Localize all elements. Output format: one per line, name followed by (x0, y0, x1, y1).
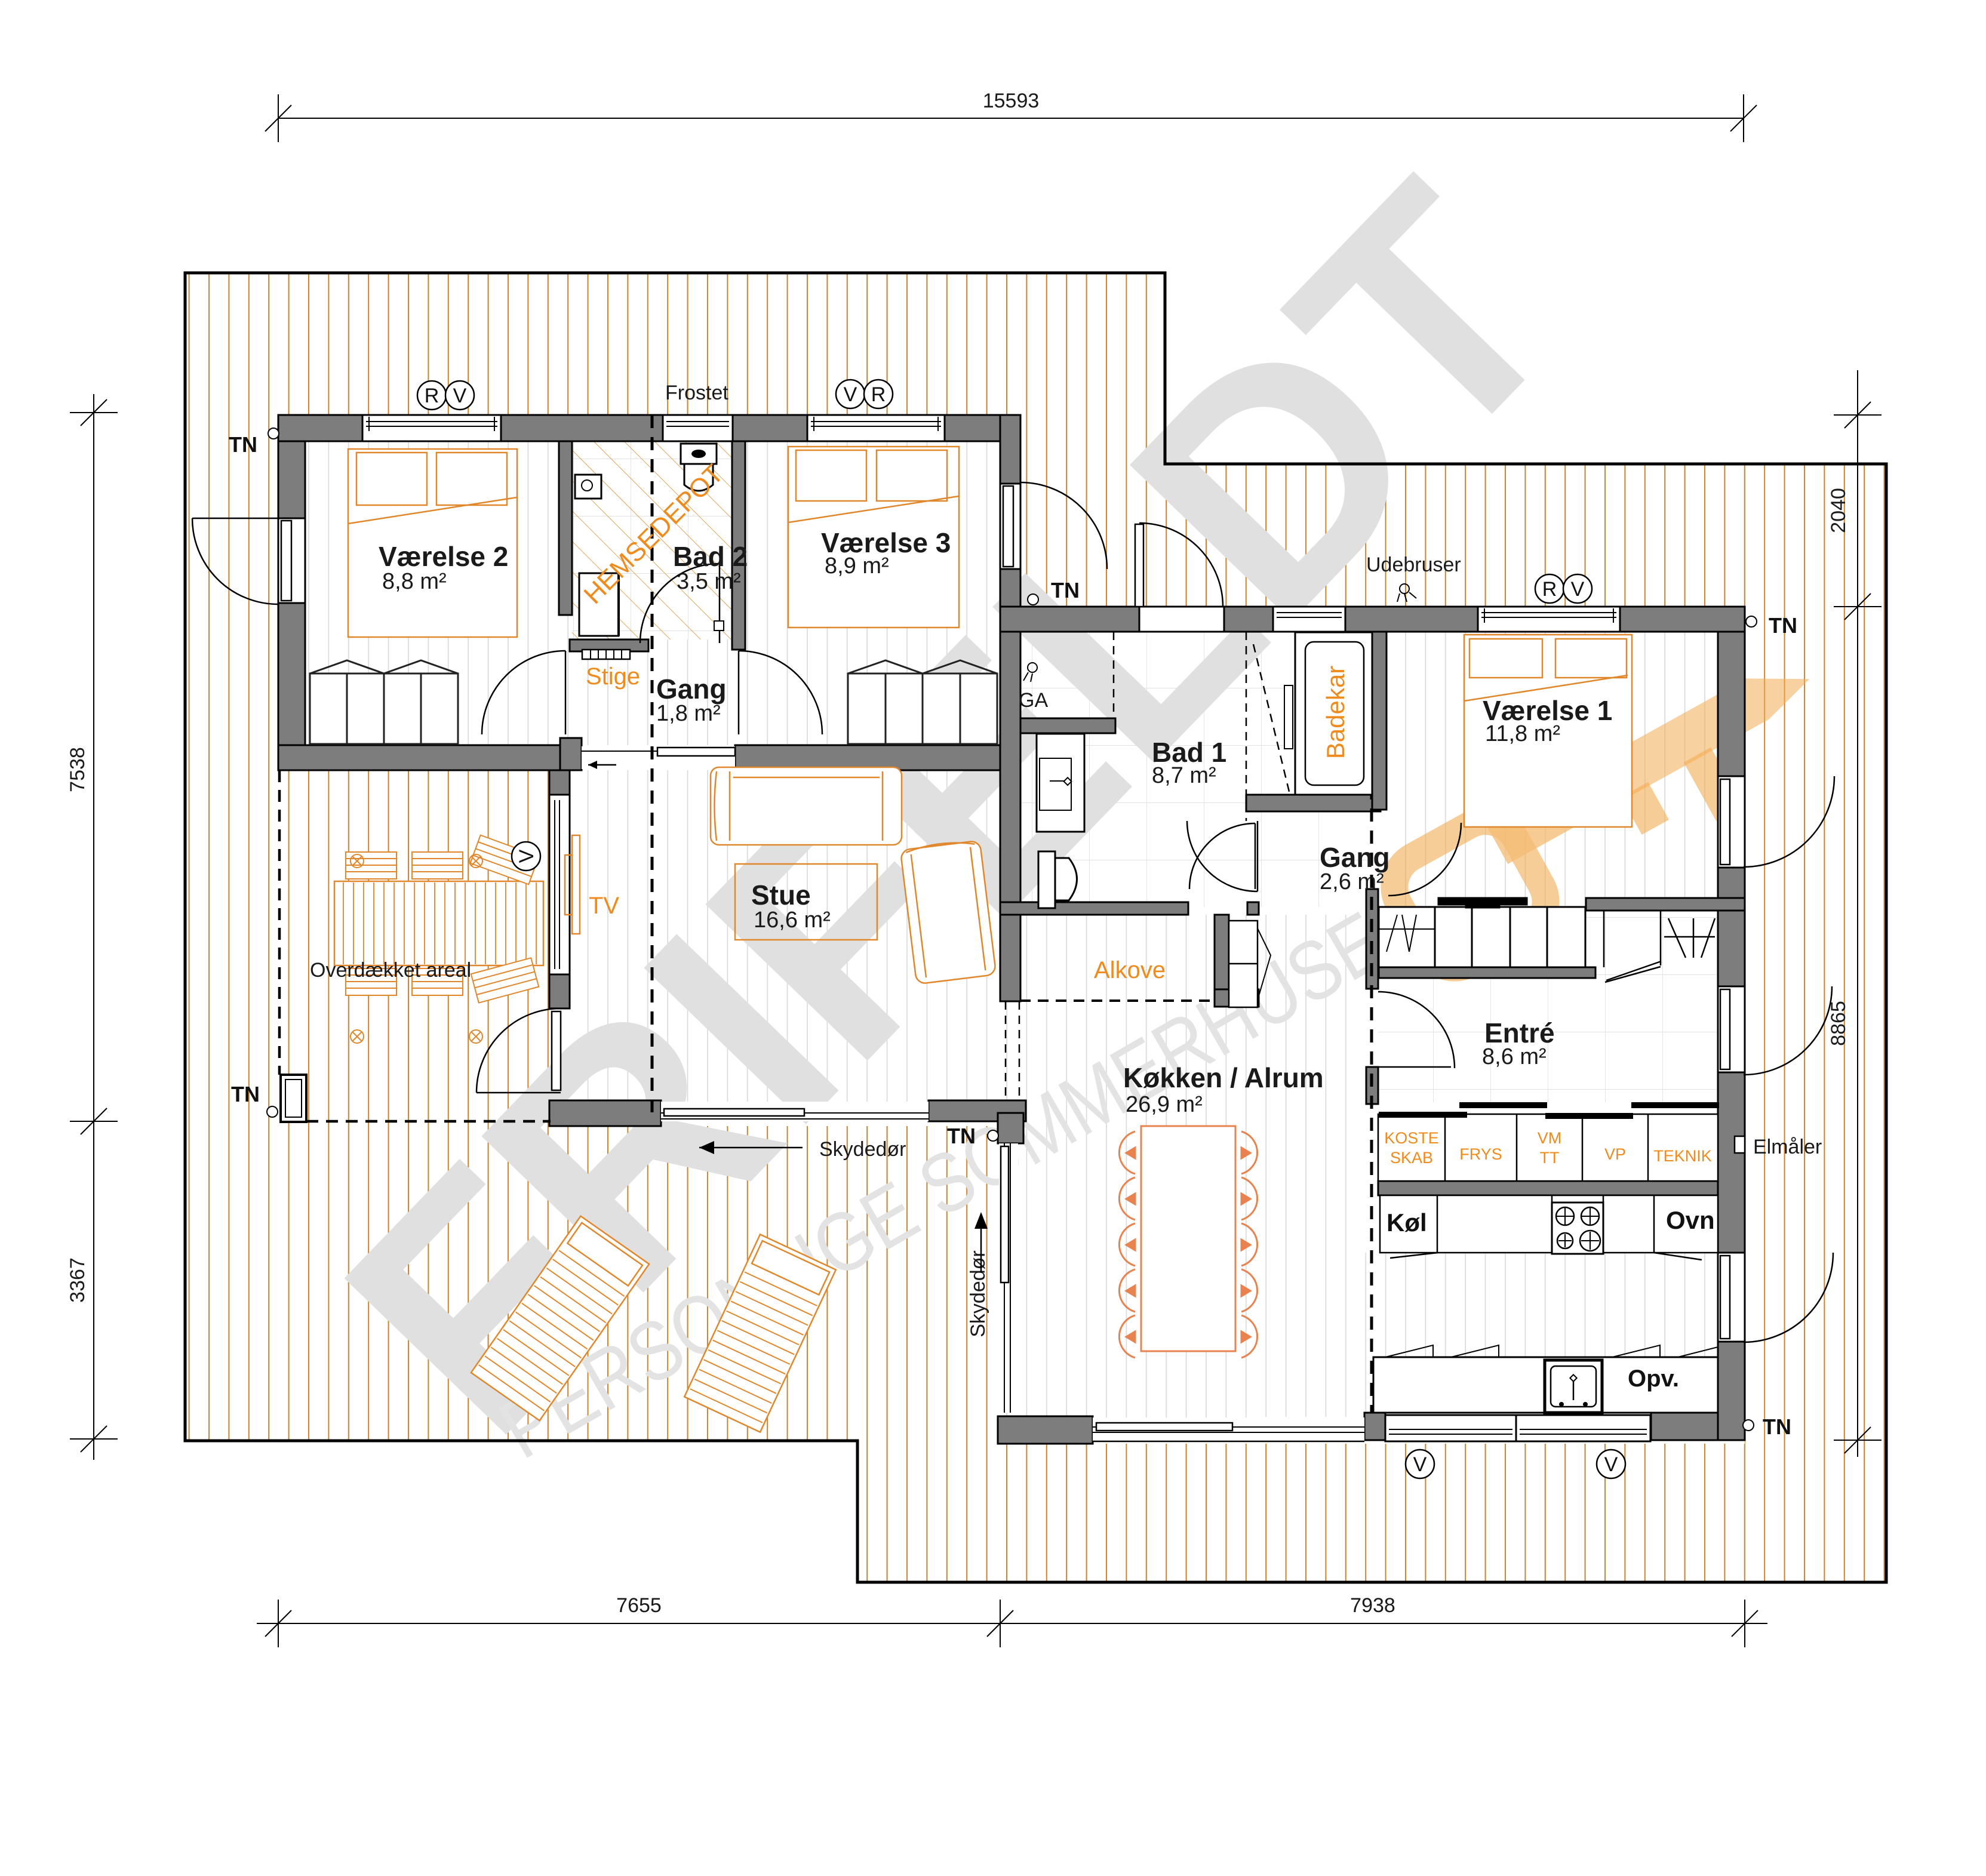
svg-text:8,9 m²: 8,9 m² (825, 553, 889, 579)
svg-text:7655: 7655 (616, 1594, 662, 1617)
svg-text:3,5 m²: 3,5 m² (677, 569, 741, 594)
svg-text:Alkove: Alkove (1094, 957, 1166, 983)
svg-text:TN: TN (1769, 613, 1797, 638)
svg-text:Badekar: Badekar (1321, 666, 1349, 759)
svg-text:16,6 m²: 16,6 m² (754, 908, 831, 933)
svg-text:R: R (425, 385, 439, 407)
svg-text:26,9 m²: 26,9 m² (1126, 1092, 1203, 1117)
svg-text:V: V (1604, 1453, 1618, 1476)
svg-text:TN: TN (1763, 1414, 1791, 1439)
svg-text:TEKNIK: TEKNIK (1653, 1147, 1712, 1165)
svg-text:R: R (1542, 578, 1557, 601)
svg-text:Udebruser: Udebruser (1366, 553, 1461, 576)
svg-text:Overdækket areal: Overdækket areal (310, 959, 471, 982)
svg-text:Skydedør: Skydedør (967, 1250, 989, 1337)
svg-text:TN: TN (1051, 578, 1080, 602)
svg-text:VM: VM (1538, 1129, 1562, 1147)
svg-text:8,7 m²: 8,7 m² (1152, 763, 1216, 788)
svg-text:V: V (515, 849, 538, 863)
svg-text:Stue: Stue (751, 879, 811, 911)
svg-text:V: V (1413, 1453, 1427, 1476)
svg-text:TV: TV (589, 893, 619, 919)
svg-text:Gang: Gang (1320, 842, 1390, 873)
svg-text:Stige: Stige (586, 663, 640, 690)
svg-text:Køkken / Alrum: Køkken / Alrum (1123, 1062, 1324, 1093)
svg-text:VP: VP (1604, 1145, 1626, 1163)
svg-text:8,6 m²: 8,6 m² (1482, 1044, 1547, 1069)
svg-text:Opv.: Opv. (1628, 1366, 1679, 1392)
svg-text:TN: TN (947, 1124, 976, 1148)
svg-text:TT: TT (1540, 1149, 1560, 1167)
svg-text:11,8 m²: 11,8 m² (1485, 721, 1560, 746)
svg-text:Værelse 2: Værelse 2 (379, 541, 508, 572)
svg-text:TN: TN (231, 1082, 260, 1106)
svg-text:Køl: Køl (1386, 1208, 1427, 1237)
svg-text:Skydedør: Skydedør (819, 1138, 906, 1161)
svg-text:2040: 2040 (1827, 488, 1850, 533)
svg-text:Bad 2: Bad 2 (673, 541, 748, 572)
svg-text:Elmåler: Elmåler (1753, 1136, 1822, 1158)
svg-text:TN: TN (229, 432, 257, 457)
svg-text:7538: 7538 (66, 747, 89, 792)
svg-text:Ovn: Ovn (1666, 1206, 1715, 1234)
svg-text:8,8 m²: 8,8 m² (382, 569, 447, 594)
svg-text:8865: 8865 (1827, 1001, 1850, 1046)
svg-text:1,8 m²: 1,8 m² (656, 701, 721, 726)
svg-text:KOSTE: KOSTE (1384, 1129, 1439, 1147)
svg-text:SKAB: SKAB (1390, 1149, 1433, 1167)
svg-text:V: V (1571, 578, 1585, 601)
svg-text:V: V (844, 383, 857, 406)
svg-text:Frostet: Frostet (665, 382, 728, 404)
svg-text:2,6 m²: 2,6 m² (1320, 869, 1384, 894)
svg-text:V: V (453, 385, 467, 407)
svg-text:7938: 7938 (1350, 1594, 1395, 1617)
svg-text:Gang: Gang (656, 673, 727, 705)
svg-text:GA: GA (1019, 689, 1048, 712)
svg-text:15593: 15593 (983, 90, 1040, 112)
svg-text:R: R (871, 383, 886, 406)
svg-text:3367: 3367 (66, 1257, 89, 1303)
svg-text:FRYS: FRYS (1459, 1145, 1502, 1163)
